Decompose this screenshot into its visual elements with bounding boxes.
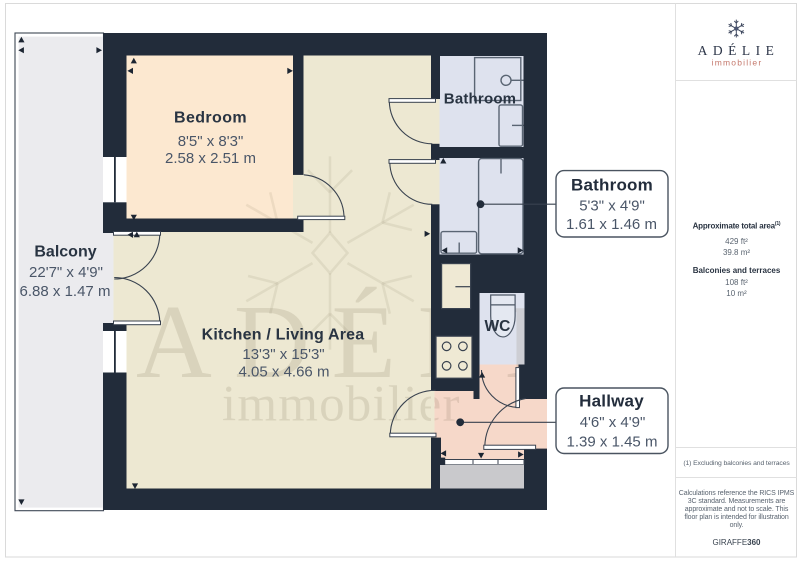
svg-text:2.58 x 2.51 m: 2.58 x 2.51 m: [165, 150, 256, 167]
svg-text:Kitchen / Living Area: Kitchen / Living Area: [202, 327, 365, 344]
svg-text:22'7" x 4'9": 22'7" x 4'9": [29, 264, 103, 281]
svg-text:ADÉLIE: ADÉLIE: [698, 43, 780, 58]
svg-text:13'3" x 15'3": 13'3" x 15'3": [242, 346, 324, 363]
svg-text:WC: WC: [484, 318, 510, 335]
svg-text:4.05 x 4.66 m: 4.05 x 4.66 m: [239, 364, 330, 381]
svg-text:5'3" x 4'9": 5'3" x 4'9": [579, 198, 645, 215]
svg-text:Bathroom: Bathroom: [444, 91, 516, 108]
svg-text:immobilier: immobilier: [712, 58, 763, 68]
svg-text:Bedroom: Bedroom: [174, 110, 247, 127]
svg-text:1.61 x 1.46 m: 1.61 x 1.46 m: [566, 216, 657, 233]
svg-text:1.39 x 1.45 m: 1.39 x 1.45 m: [567, 434, 658, 451]
svg-text:Hallway: Hallway: [579, 392, 644, 411]
svg-text:immobilier: immobilier: [222, 377, 461, 433]
svg-text:8'5" x 8'3": 8'5" x 8'3": [178, 133, 244, 150]
svg-text:Balcony: Balcony: [34, 244, 96, 261]
svg-text:6.88 x 1.47 m: 6.88 x 1.47 m: [20, 283, 111, 300]
svg-text:4'6" x 4'9": 4'6" x 4'9": [580, 414, 646, 431]
svg-text:Bathroom: Bathroom: [571, 176, 653, 195]
